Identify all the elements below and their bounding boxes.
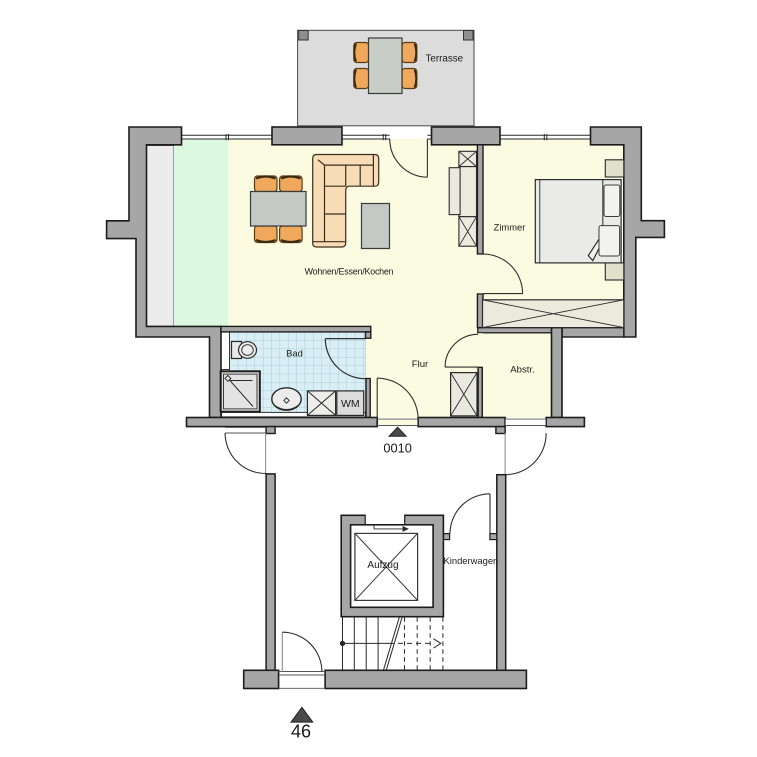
svg-text:Terrasse: Terrasse bbox=[426, 54, 464, 65]
svg-text:Kinderwagen: Kinderwagen bbox=[444, 555, 499, 566]
svg-text:Aufzug: Aufzug bbox=[367, 560, 398, 571]
svg-text:WM: WM bbox=[341, 398, 360, 410]
svg-text:Abstr.: Abstr. bbox=[510, 365, 535, 376]
svg-text:Flur: Flur bbox=[412, 359, 429, 370]
svg-text:Bad: Bad bbox=[286, 348, 303, 359]
svg-text:0010: 0010 bbox=[383, 441, 411, 456]
svg-text:46: 46 bbox=[291, 722, 311, 742]
svg-text:Zimmer: Zimmer bbox=[494, 222, 526, 233]
svg-text:Wohnen/Essen/Kochen: Wohnen/Essen/Kochen bbox=[305, 267, 394, 277]
